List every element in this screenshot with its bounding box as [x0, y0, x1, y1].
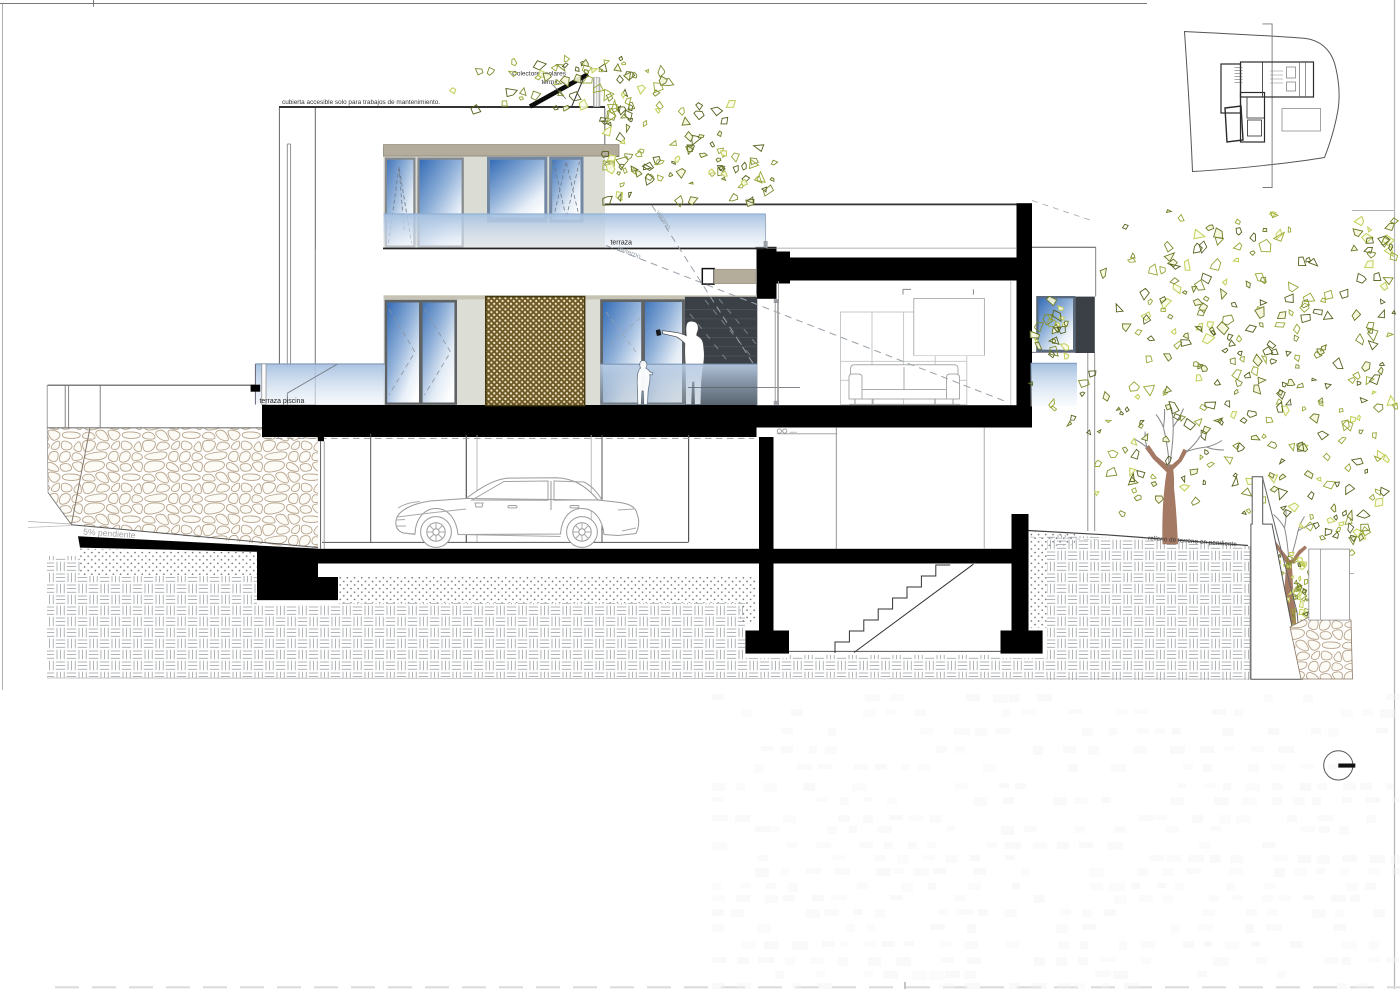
svg-text:cubierta accesible solo para t: cubierta accesible solo para trabajos de…: [282, 99, 440, 106]
svg-text:terraza piscina: terraza piscina: [260, 398, 305, 405]
